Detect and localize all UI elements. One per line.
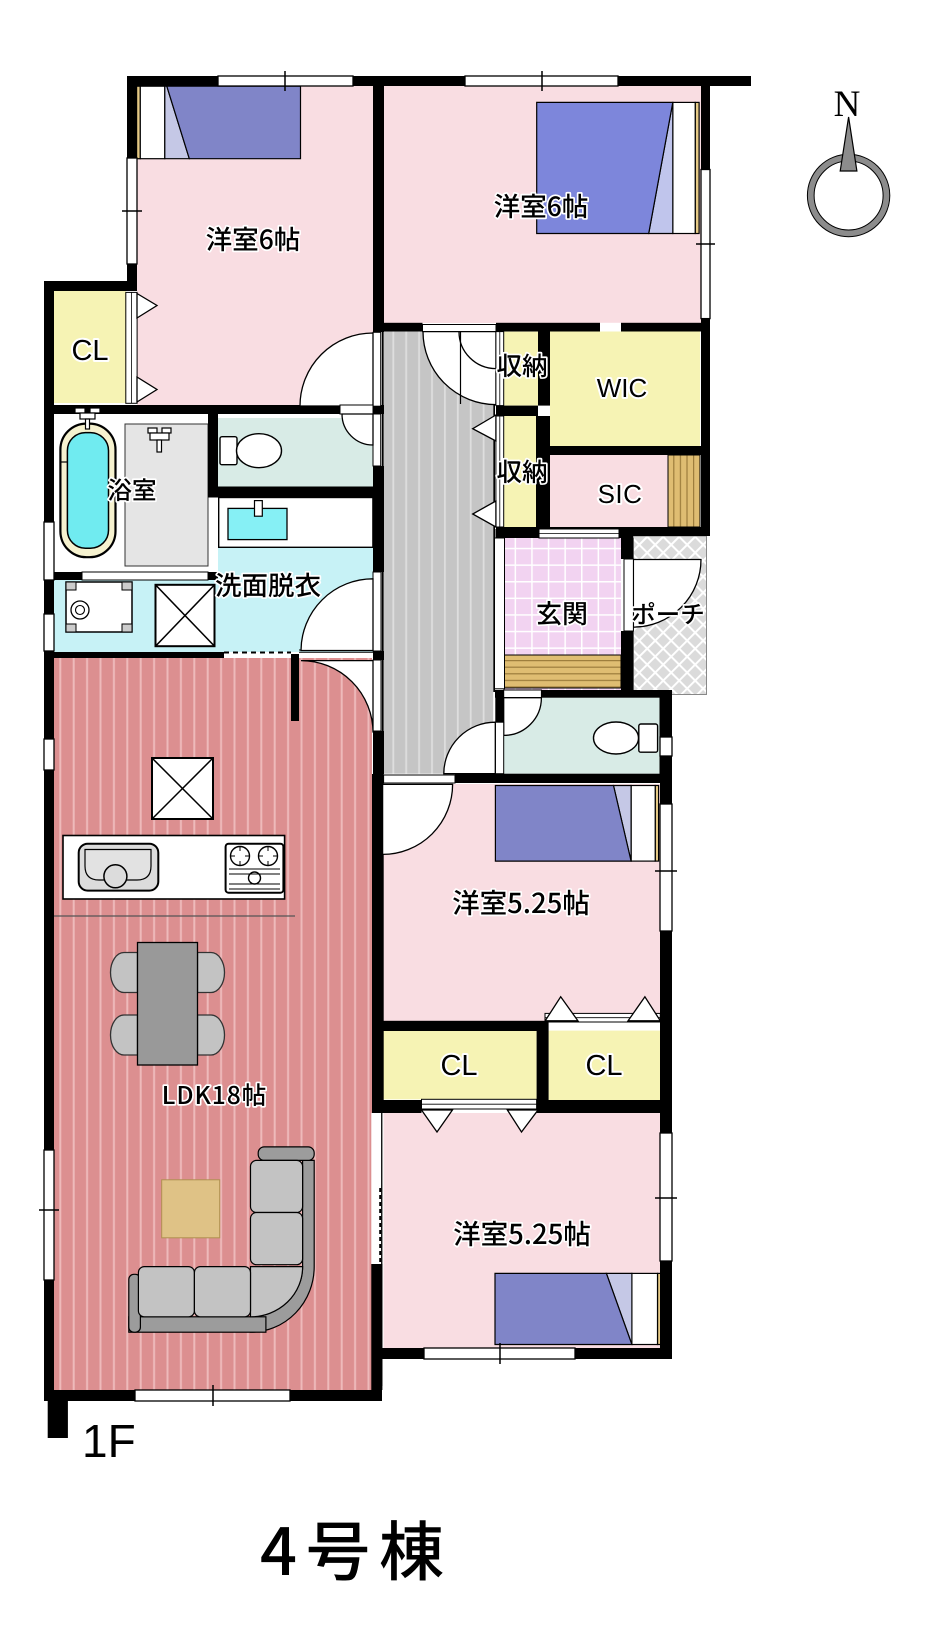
svg-text:WIC: WIC [597,373,648,403]
svg-text:CL: CL [440,1050,477,1082]
svg-text:CL: CL [71,335,108,367]
svg-text:N: N [834,84,861,125]
svg-text:CL: CL [585,1050,622,1082]
svg-text:1F: 1F [82,1415,136,1467]
svg-text:SIC: SIC [598,479,643,509]
